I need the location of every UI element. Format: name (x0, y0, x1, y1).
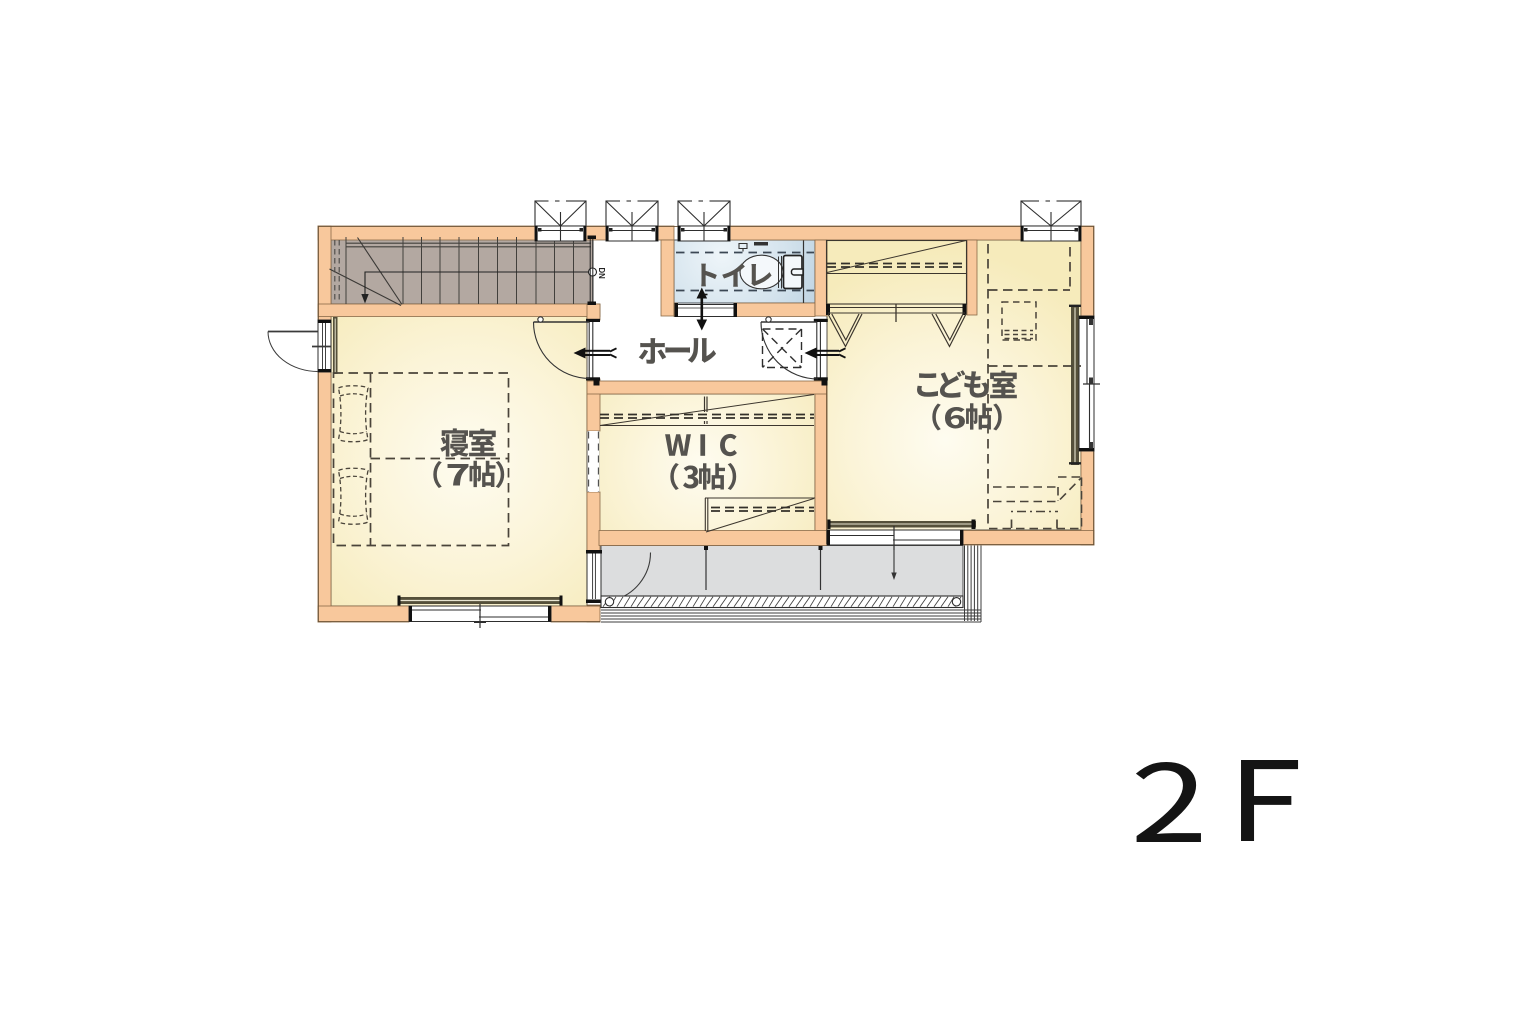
svg-text:DN: DN (597, 268, 606, 280)
